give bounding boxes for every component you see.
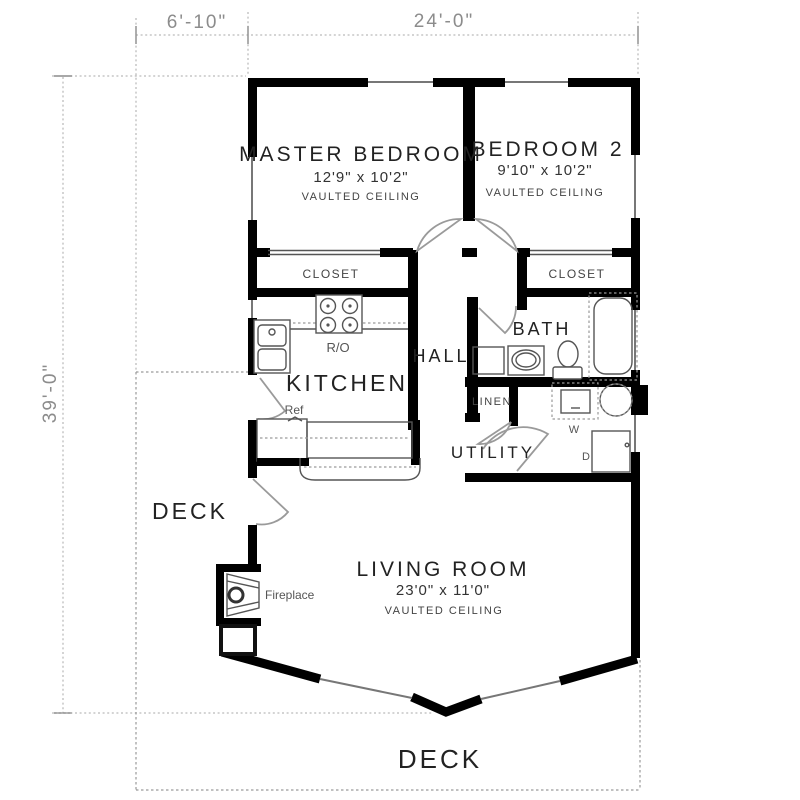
closet-master-label: CLOSET [302,267,359,281]
living-room-note: VAULTED CEILING [385,605,504,617]
master-bedroom-size: 12'9" x 10'2" [313,169,408,186]
bath-label: BATH [513,319,572,339]
fireplace-label: Fireplace [265,588,315,602]
master-bedroom-label: MASTER BEDROOM [239,143,483,166]
living-room-size: 23'0" x 11'0" [396,582,490,599]
bedroom2-label: BEDROOM 2 [471,138,624,161]
deck-outlines [136,372,640,790]
hall-label: HALL [412,346,469,366]
closet-bedroom2-label: CLOSET [548,267,605,281]
range-label: R/O [326,340,349,355]
washer-fixture [552,383,598,419]
dimension-lines [52,12,638,713]
kitchen-label: KITCHEN [286,370,408,396]
closet-sliding-doors [268,251,612,255]
refrigerator-label: Ref [285,403,304,417]
linen-label: LINEN [472,396,512,408]
toilet-fixture [553,341,582,379]
utility-label: UTILITY [451,443,535,462]
dryer-fixture [592,431,630,472]
deck-bottom-label: DECK [398,744,482,774]
water-heater-fixture [600,384,632,416]
dimension-left: 39'-0" [40,363,61,423]
wood-storage-box [221,626,255,654]
floor-plan-drawing: 6'-10" 24'-0" 39'-0" [0,0,800,800]
washer-label: W [569,424,580,436]
bedroom2-size: 9'10" x 10'2" [497,162,592,179]
fireplace-fixture [216,564,261,654]
living-room-label: LIVING ROOM [356,558,529,581]
deck-side-label: DECK [152,498,228,524]
dimension-top-left: 6'-10" [167,12,227,33]
bathtub-fixture [589,293,637,380]
bath-sink-fixture [508,346,544,375]
room-labels: MASTER BEDROOM 12'9" x 10'2" VAULTED CEI… [152,138,624,774]
dryer-label: D [582,451,590,463]
utility-fixtures [552,383,632,472]
eating-bar-outline [300,458,420,480]
dimension-top-right: 24'-0" [414,11,474,32]
refrigerator-fixture [257,417,307,461]
master-bedroom-note: VAULTED CEILING [302,191,421,203]
bedroom2-note: VAULTED CEILING [486,187,605,199]
floor-plan-page: 6'-10" 24'-0" 39'-0" [0,0,800,800]
kitchen-sink-fixture [254,320,290,373]
